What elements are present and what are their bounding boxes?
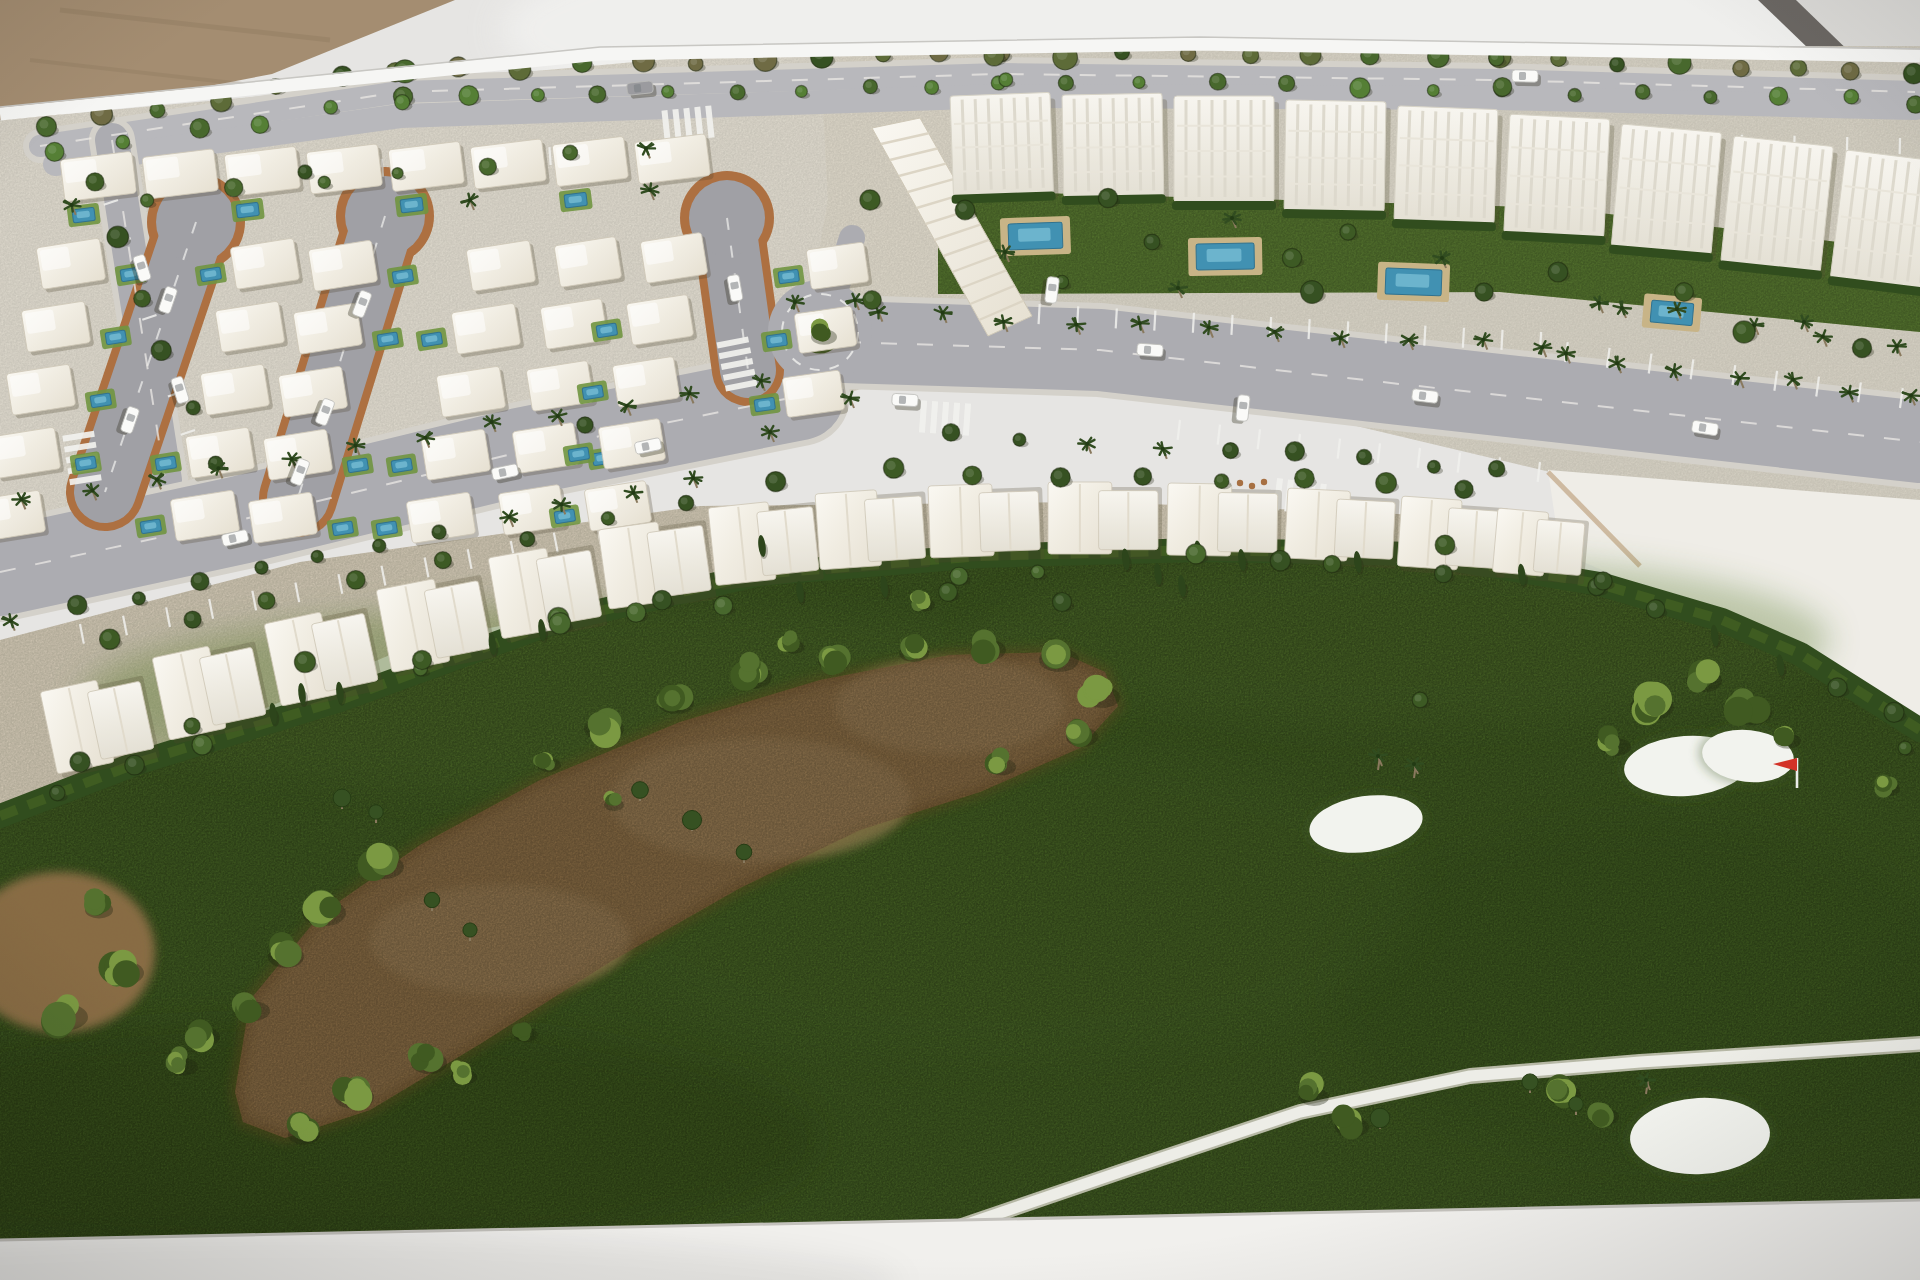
scale-model-scene — [0, 0, 1920, 1280]
photo-of-architectural-model — [0, 0, 1920, 1280]
vignette-overlay — [0, 0, 1920, 1280]
photo-vignette — [0, 0, 1920, 1280]
